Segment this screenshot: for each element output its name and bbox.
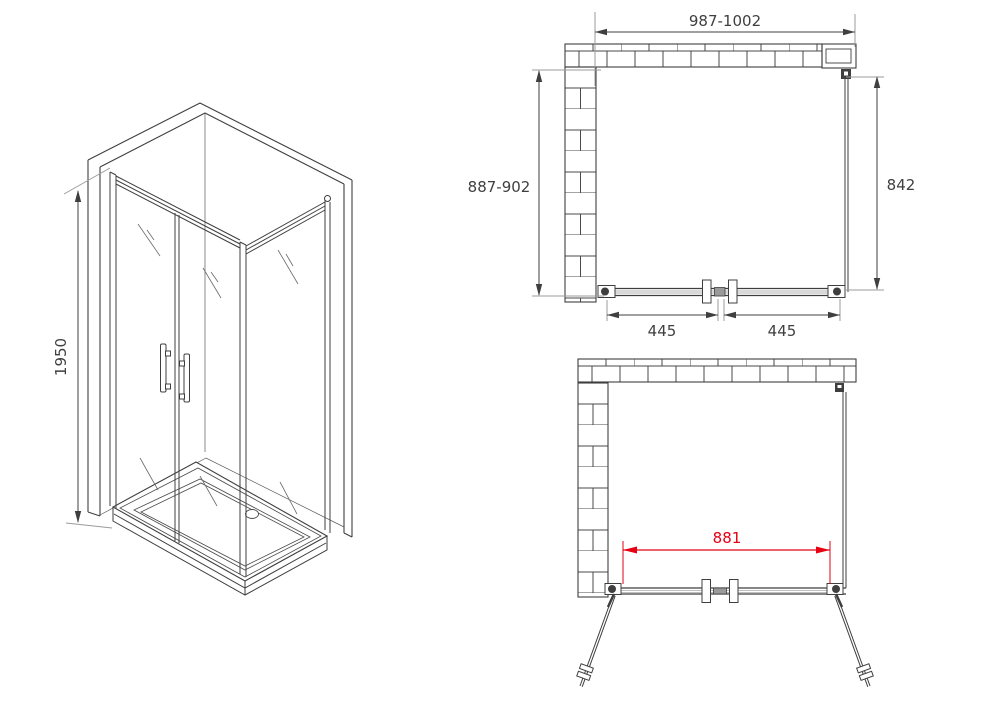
open-left-door bbox=[577, 594, 615, 687]
plan-side-glass-panel bbox=[845, 79, 848, 292]
open-right-hinge bbox=[827, 584, 843, 595]
door-dimensions: 445 445 bbox=[607, 299, 840, 340]
side-panel-dimension-label: 842 bbox=[887, 176, 916, 194]
iso-post-cap bbox=[325, 196, 331, 202]
plan-top-brick-wall bbox=[565, 44, 822, 67]
open-left-brick-wall bbox=[578, 383, 608, 597]
plan-right-hinge bbox=[828, 286, 845, 298]
iso-walls bbox=[88, 103, 352, 537]
open-right-door bbox=[835, 594, 873, 687]
plan-door-rail bbox=[598, 280, 845, 303]
open-side-glass-panel bbox=[843, 392, 846, 588]
plan-door-handles bbox=[703, 280, 738, 303]
iso-wall-inner-edges bbox=[100, 113, 344, 527]
plan-view-closed: 987-1002 887-902 842 445 445 bbox=[468, 12, 916, 340]
right-door-dimension-label: 445 bbox=[768, 322, 797, 340]
height-dimension: 1950 bbox=[52, 168, 112, 528]
drain-icon bbox=[246, 510, 259, 519]
height-dimension-label: 1950 bbox=[52, 338, 70, 376]
plan-wall-end-block bbox=[822, 44, 856, 68]
plan-view-open: 881 bbox=[577, 359, 874, 687]
side-panel-dimension: 842 bbox=[846, 76, 915, 290]
opening-dimension: 881 bbox=[623, 529, 830, 584]
drawing-svg: 1950 bbox=[0, 0, 1000, 707]
open-top-brick-wall bbox=[578, 359, 856, 382]
left-door-dimension-label: 445 bbox=[648, 322, 677, 340]
isometric-view: 1950 bbox=[52, 103, 352, 595]
plan-left-brick-wall bbox=[565, 67, 596, 302]
shower-enclosure-technical-drawing: 1950 bbox=[0, 0, 1000, 707]
iso-shower-tray bbox=[113, 462, 327, 595]
open-wall-bracket bbox=[835, 383, 844, 392]
open-left-door-handle bbox=[579, 664, 593, 673]
open-right-door-handle bbox=[857, 664, 871, 673]
opening-dimension-label: 881 bbox=[713, 529, 742, 547]
open-door-rail bbox=[605, 580, 846, 603]
open-rail-handles bbox=[702, 580, 738, 603]
depth-dimension-label: 887-902 bbox=[468, 178, 531, 196]
width-dimension-label: 987-1002 bbox=[689, 12, 761, 30]
open-left-hinge bbox=[605, 584, 621, 595]
